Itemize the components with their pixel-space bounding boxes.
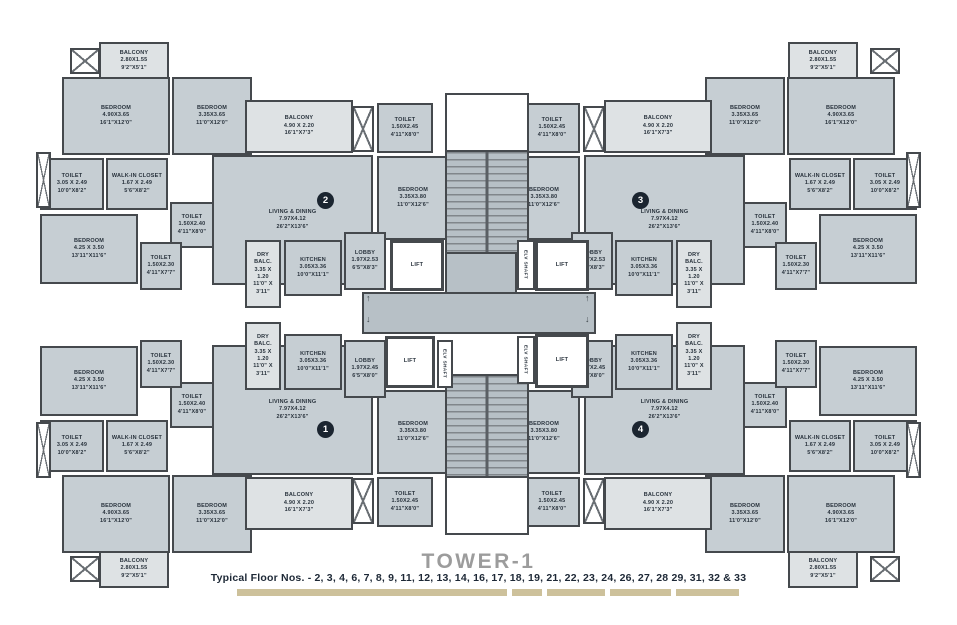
room-label: DRYBALC.3.35 X1.2011'0" X3'11" (684, 252, 703, 297)
room-label: BALCONY4.90 X 2.2016'1"X7'3" (284, 492, 314, 514)
room-label: KITCHEN3.05X3.3610'0"X11'1" (628, 257, 660, 279)
toilet-245-unit4-room: TOILET1.50X2.454'11"X8'0" (524, 477, 580, 527)
elv-shaft: ELV SHAFT (437, 340, 453, 388)
staircase (445, 374, 529, 478)
legend-bar-segment (676, 589, 739, 596)
walkin-unit3-room: WALK-IN CLOSET1.67 X 2.495'6"X8'2" (789, 158, 851, 210)
room-label: TOILET1.50X2.304'11"X7'7" (782, 353, 811, 375)
room-label: BEDROOM4.25 X 3.5013'11"X11'6" (851, 238, 886, 260)
duct-hatch (70, 48, 100, 74)
walkin-unit4-room: WALK-IN CLOSET1.67 X 2.495'6"X8'2" (789, 420, 851, 472)
room-label: BEDROOM4.90X3.6516'1"X12'0" (825, 105, 857, 127)
room-label: KITCHEN3.05X3.3610'0"X11'1" (297, 257, 329, 279)
balcony-big-unit2-room: BALCONY4.90 X 2.2016'1"X7'3" (245, 100, 353, 153)
room-label: LIVING & DINING7.97X4.1226'2"X13'6" (269, 209, 317, 231)
lift-label: LIFT (411, 262, 423, 269)
dry-balc-unit4-room: DRYBALC.3.35 X1.2011'0" X3'11" (676, 322, 712, 390)
duct-hatch (352, 106, 374, 152)
up-arrow-icon: ↑ (366, 294, 371, 303)
room-label: BALCONY2.80X1.559'2"X5'1" (120, 50, 149, 72)
lobby-bottom-unit1-room: LOBBY1.97X2.456'5"X8'0" (344, 340, 386, 398)
unit-number-badge: 1 (317, 421, 334, 438)
lift-shaft: LIFT (535, 334, 589, 388)
room-label: DRYBALC.3.35 X1.2011'0" X3'11" (253, 334, 272, 379)
toilet-245-unit2-room: TOILET1.50X2.454'11"X8'0" (377, 103, 433, 153)
balcony-small-unit2-room: BALCONY2.80X1.559'2"X5'1" (99, 42, 169, 80)
legend-bar (237, 589, 739, 596)
elv-shaft-label: ELV SHAFT (443, 349, 448, 378)
tower-title: TOWER-1 (0, 550, 957, 574)
bedroom-b-unit4-room: BEDROOM3.35X3.6511'0"X12'0" (705, 475, 785, 553)
dry-balc-unit1-room: DRYBALC.3.35 X1.2011'0" X3'11" (245, 322, 281, 390)
staircase (445, 150, 529, 254)
room-label: BEDROOM4.90X3.6516'1"X12'0" (100, 503, 132, 525)
bedroom-c-unit3-room: BEDROOM4.25 X 3.5013'11"X11'6" (819, 214, 917, 284)
down-arrow-icon: ↓ (366, 315, 371, 324)
room-label: TOILET3.05 X 2.4910'0"X8'2" (870, 435, 900, 457)
dry-balc-unit2-room: DRYBALC.3.35 X1.2011'0" X3'11" (245, 240, 281, 308)
room-label: BALCONY4.90 X 2.2016'1"X7'3" (643, 115, 673, 137)
room-label: LOBBY1.97X2.536'5"X8'3" (352, 250, 379, 272)
room-label: BEDROOM4.90X3.6516'1"X12'0" (100, 105, 132, 127)
lobby-top-unit2-room: LOBBY1.97X2.536'5"X8'3" (344, 232, 386, 290)
room-label: BEDROOM4.25 X 3.5013'11"X11'6" (72, 238, 107, 260)
duct-hatch (36, 422, 51, 478)
toilet-240-unit1-room: TOILET1.50X2.404'11"X8'0" (170, 382, 214, 428)
balcony-big-unit4-room: BALCONY4.90 X 2.2016'1"X7'3" (604, 477, 712, 530)
floor-plan-canvas: BALCONY2.80X1.559'2"X5'1"BEDROOM4.90X3.6… (0, 0, 957, 625)
lift-label: LIFT (556, 262, 568, 269)
room-label: DRYBALC.3.35 X1.2011'0" X3'11" (253, 252, 272, 297)
room-label: BEDROOM3.35X3.8011'0"X12'6" (397, 187, 429, 209)
room-label: BALCONY4.90 X 2.2016'1"X7'3" (643, 492, 673, 514)
room-label: LIVING & DINING7.97X4.1226'2"X13'6" (269, 399, 317, 421)
elv-shaft: ELV SHAFT (517, 240, 535, 290)
dry-balc-unit3-room: DRYBALC.3.35 X1.2011'0" X3'11" (676, 240, 712, 308)
down-arrow-icon: ↓ (585, 315, 590, 324)
corridor (362, 292, 596, 334)
room-label: WALK-IN CLOSET1.67 X 2.495'6"X8'2" (112, 435, 162, 457)
room-label: BALCONY2.80X1.559'2"X5'1" (809, 50, 838, 72)
bedroom-a-unit2-room: BEDROOM4.90X3.6516'1"X12'0" (62, 77, 170, 155)
unit-number-badge: 4 (632, 421, 649, 438)
kitchen-unit2-room: KITCHEN3.05X3.3610'0"X11'1" (284, 240, 342, 296)
lift-shaft: LIFT (385, 336, 435, 388)
toilet-230-unit4-room: TOILET1.50X2.304'11"X7'7" (775, 340, 817, 388)
lift-shaft: LIFT (535, 240, 589, 291)
room-label: BEDROOM3.35X3.8011'0"X12'6" (397, 421, 429, 443)
walkin-unit1-room: WALK-IN CLOSET1.67 X 2.495'6"X8'2" (106, 420, 168, 472)
room-label: WALK-IN CLOSET1.67 X 2.495'6"X8'2" (795, 173, 845, 195)
bedroom-a-unit1-room: BEDROOM4.90X3.6516'1"X12'0" (62, 475, 170, 553)
duct-hatch (870, 48, 900, 74)
room-label: TOILET1.50X2.304'11"X7'7" (147, 353, 176, 375)
bedroom-c-unit4-room: BEDROOM4.25 X 3.5013'11"X11'6" (819, 346, 917, 416)
room-label: TOILET1.50X2.404'11"X8'0" (178, 214, 207, 236)
bedroom-d-unit1-room: BEDROOM3.35X3.8011'0"X12'6" (377, 390, 449, 474)
toilet-230-unit1-room: TOILET1.50X2.304'11"X7'7" (140, 340, 182, 388)
up-arrow-icon: ↑ (585, 294, 590, 303)
kitchen-unit1-room: KITCHEN3.05X3.3610'0"X11'1" (284, 334, 342, 390)
unit-number-badge: 3 (632, 192, 649, 209)
room-label: TOILET1.50X2.454'11"X8'0" (391, 491, 420, 513)
room-label: LIVING & DINING7.97X4.1226'2"X13'6" (641, 209, 689, 231)
duct-hatch (583, 478, 605, 524)
duct-hatch (36, 152, 51, 208)
stair-landing (445, 93, 529, 152)
room-label: TOILET3.05 X 2.4910'0"X8'2" (870, 173, 900, 195)
room-label: BEDROOM4.25 X 3.5013'11"X11'6" (851, 370, 886, 392)
elv-shaft-label: ELV SHAFT (524, 345, 529, 374)
room-label: BEDROOM3.35X3.6511'0"X12'0" (196, 105, 228, 127)
balcony-big-unit3-room: BALCONY4.90 X 2.2016'1"X7'3" (604, 100, 712, 153)
bedroom-d-unit2-room: BEDROOM3.35X3.8011'0"X12'6" (377, 156, 449, 240)
room-label: KITCHEN3.05X3.3610'0"X11'1" (628, 351, 660, 373)
kitchen-unit3-room: KITCHEN3.05X3.3610'0"X11'1" (615, 240, 673, 296)
room-label: LIVING & DINING7.97X4.1226'2"X13'6" (641, 399, 689, 421)
toilet-230-unit3-room: TOILET1.50X2.304'11"X7'7" (775, 242, 817, 290)
bedroom-c-unit1-room: BEDROOM4.25 X 3.5013'11"X11'6" (40, 346, 138, 416)
unit-number-badge: 2 (317, 192, 334, 209)
bedroom-a-unit4-room: BEDROOM4.90X3.6516'1"X12'0" (787, 475, 895, 553)
room-label: BEDROOM3.35X3.6511'0"X12'0" (729, 105, 761, 127)
duct-hatch (906, 422, 921, 478)
elv-shaft-label: ELV SHAFT (524, 250, 529, 279)
lift-label: LIFT (556, 357, 568, 364)
room-label: TOILET1.50X2.304'11"X7'7" (782, 255, 811, 277)
walkin-unit2-room: WALK-IN CLOSET1.67 X 2.495'6"X8'2" (106, 158, 168, 210)
room-label: BEDROOM3.35X3.8011'0"X12'6" (528, 421, 560, 443)
toilet-230-unit2-room: TOILET1.50X2.304'11"X7'7" (140, 242, 182, 290)
room-label: TOILET1.50X2.404'11"X8'0" (178, 394, 207, 416)
toilet-245-unit1-room: TOILET1.50X2.454'11"X8'0" (377, 477, 433, 527)
room-label: BEDROOM3.35X3.6511'0"X12'0" (196, 503, 228, 525)
room-label: TOILET3.05 X 2.4910'0"X8'2" (57, 173, 87, 195)
duct-hatch (352, 478, 374, 524)
bedroom-b-unit1-room: BEDROOM3.35X3.6511'0"X12'0" (172, 475, 252, 553)
room-label: WALK-IN CLOSET1.67 X 2.495'6"X8'2" (112, 173, 162, 195)
balcony-big-unit1-room: BALCONY4.90 X 2.2016'1"X7'3" (245, 477, 353, 530)
duct-hatch (906, 152, 921, 208)
duct-hatch (583, 106, 605, 152)
room-label: TOILET1.50X2.454'11"X8'0" (391, 117, 420, 139)
room-label: LOBBY1.97X2.456'5"X8'0" (352, 358, 379, 380)
lift-lobby (445, 252, 517, 294)
room-label: KITCHEN3.05X3.3610'0"X11'1" (297, 351, 329, 373)
legend-bar-segment (512, 589, 542, 596)
elv-shaft: ELV SHAFT (517, 336, 535, 384)
room-label: BALCONY4.90 X 2.2016'1"X7'3" (284, 115, 314, 137)
lift-label: LIFT (404, 358, 416, 365)
lift-shaft: LIFT (390, 240, 444, 291)
floor-numbers-caption: Typical Floor Nos. - 2, 3, 4, 6, 7, 8, 9… (0, 572, 957, 584)
toilet-245-unit3-room: TOILET1.50X2.454'11"X8'0" (524, 103, 580, 153)
room-label: BEDROOM3.35X3.6511'0"X12'0" (729, 503, 761, 525)
room-label: TOILET1.50X2.454'11"X8'0" (538, 491, 567, 513)
legend-bar-segment (547, 589, 605, 596)
legend-bar-segment (610, 589, 671, 596)
stair-landing (445, 476, 529, 535)
kitchen-unit4-room: KITCHEN3.05X3.3610'0"X11'1" (615, 334, 673, 390)
room-label: TOILET1.50X2.404'11"X8'0" (751, 394, 780, 416)
room-label: TOILET1.50X2.454'11"X8'0" (538, 117, 567, 139)
bedroom-c-unit2-room: BEDROOM4.25 X 3.5013'11"X11'6" (40, 214, 138, 284)
floor-plan: BALCONY2.80X1.559'2"X5'1"BEDROOM4.90X3.6… (0, 0, 957, 625)
room-label: WALK-IN CLOSET1.67 X 2.495'6"X8'2" (795, 435, 845, 457)
legend-bar-segment (237, 589, 507, 596)
room-label: TOILET3.05 X 2.4910'0"X8'2" (57, 435, 87, 457)
bedroom-a-unit3-room: BEDROOM4.90X3.6516'1"X12'0" (787, 77, 895, 155)
bedroom-b-unit2-room: BEDROOM3.35X3.6511'0"X12'0" (172, 77, 252, 155)
room-label: DRYBALC.3.35 X1.2011'0" X3'11" (684, 334, 703, 379)
room-label: BEDROOM3.35X3.8011'0"X12'6" (528, 187, 560, 209)
room-label: TOILET1.50X2.304'11"X7'7" (147, 255, 176, 277)
bedroom-b-unit3-room: BEDROOM3.35X3.6511'0"X12'0" (705, 77, 785, 155)
toilet-240-unit4-room: TOILET1.50X2.404'11"X8'0" (743, 382, 787, 428)
room-label: BEDROOM4.25 X 3.5013'11"X11'6" (72, 370, 107, 392)
room-label: BEDROOM4.90X3.6516'1"X12'0" (825, 503, 857, 525)
balcony-small-unit3-room: BALCONY2.80X1.559'2"X5'1" (788, 42, 858, 80)
room-label: TOILET1.50X2.404'11"X8'0" (751, 214, 780, 236)
